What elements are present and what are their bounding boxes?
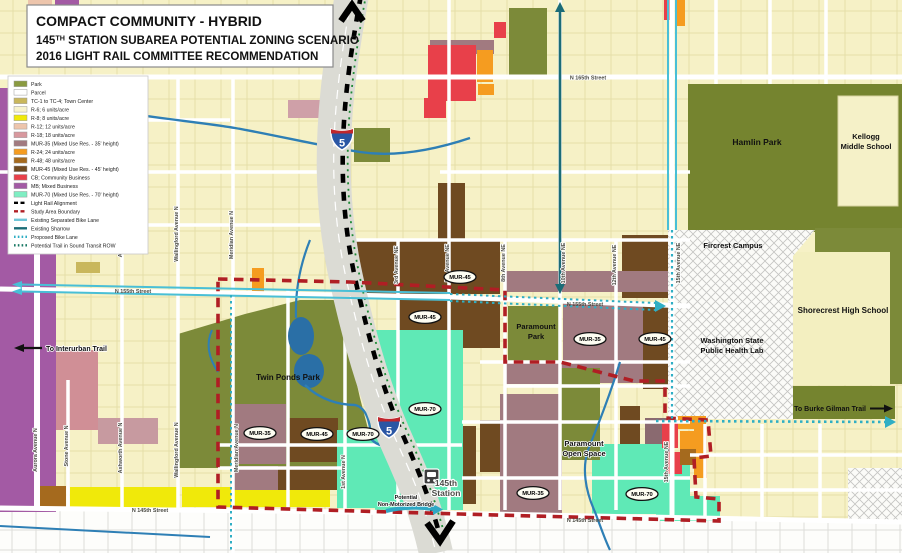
badge-text: MUR-45 (414, 315, 436, 321)
street-label: N 165th Street (570, 76, 606, 82)
street-label: N 145th Street (567, 518, 603, 524)
legend-label: R-24; 24 units/acre (31, 150, 75, 156)
title-145: 145 (36, 34, 56, 47)
badge-text: MUR-45 (644, 337, 666, 343)
legend-label: R-6; 6 units/acre (31, 108, 69, 114)
zoning-badge: MUR-45 (301, 428, 333, 441)
street-label: 12th Avenue NE (612, 244, 618, 285)
zone-mur45-c (438, 183, 465, 240)
health-lab-label2: Public Health Lab (701, 346, 764, 355)
kellogg-label1: Kellogg (852, 132, 880, 141)
street-label: 15th Avenue NE (676, 242, 682, 283)
station-label1: 145th (435, 478, 457, 488)
zoning-badge: MUR-45 (444, 271, 476, 284)
zoning-badge: MUR-45 (409, 311, 441, 324)
legend-label: R-18; 18 units/acre (31, 133, 75, 139)
fircrest-campus-label: Fircrest Campus (703, 241, 762, 250)
xhatch-se-corner (848, 468, 902, 520)
kellogg-label2: Middle School (841, 142, 892, 151)
zone-cb-top (428, 45, 476, 101)
legend-label: Study Area Boundary (31, 210, 80, 216)
street-label: 15th Avenue NE (664, 441, 670, 482)
badge-text: MUR-70 (414, 407, 436, 413)
park-e-strip (888, 254, 902, 384)
legend-label: MUR-35 (Mixed Use Res. - 35' height) (31, 142, 119, 148)
zone-r24-top2 (478, 84, 494, 95)
street-label: Ashworth Avenue N (118, 422, 124, 473)
badge-text: MUR-45 (449, 275, 471, 281)
legend-label: Proposed Bike Lane (31, 235, 78, 241)
legend-label: MB; Mixed Business (31, 184, 78, 190)
legend-label: CB; Community Business (31, 176, 90, 182)
station-icon-wheel1 (427, 479, 430, 482)
paramount-open-space-label1: Paramount (564, 439, 604, 448)
zone-r8-145th-a (70, 487, 178, 508)
station-icon-window (427, 472, 436, 477)
shield-number: 5 (339, 138, 345, 150)
street-label: Wallingford Avenue N (174, 422, 180, 478)
twin-pond-north (288, 317, 314, 355)
street-label: N 155th Street (567, 302, 603, 308)
zoning-map-page: 5 5 Aurora Avenue N Stone Avenue N Ashwo… (0, 0, 902, 553)
park-i5-patch (354, 128, 390, 162)
title-th-sup: TH (55, 34, 65, 43)
street-label: N 145th Street (132, 508, 168, 514)
zone-r18-west2 (98, 418, 158, 444)
street-label: Wallingford Avenue N (174, 206, 180, 262)
map-title-line2: 145TH STATION SUBAREA POTENTIAL ZONING S… (36, 34, 359, 48)
legend-label: R-12; 12 units/acre (31, 125, 75, 131)
badge-text: MUR-35 (579, 337, 601, 343)
badge-text: MUR-35 (249, 431, 271, 437)
fircrest-campus-area (668, 230, 793, 419)
legend-label: Potential Trail in Sound Transit ROW (31, 244, 116, 250)
park-ne-strip (815, 228, 902, 254)
zoning-badge: MUR-35 (517, 487, 549, 500)
health-lab-label1: Washington State (700, 336, 763, 345)
legend-label: R-48; 48 units/acre (31, 159, 75, 165)
zoning-map-canvas[interactable]: 5 5 Aurora Avenue N Stone Avenue N Ashwo… (0, 0, 902, 553)
zone-tc-west (76, 262, 100, 273)
street-label: N 155th Street (115, 289, 151, 295)
park-north-strip (509, 8, 547, 77)
street-label: 8th Avenue NE (501, 244, 507, 282)
map-title-line1: COMPACT COMMUNITY - HYBRID (36, 13, 262, 29)
interurban-trail-label: To Interurban Trail (46, 346, 107, 353)
legend-label: R-8; 8 units/acre (31, 116, 69, 122)
zone-r18-west (56, 350, 98, 430)
legend: Park Parcel TC-1 to TC-4; Town Center R-… (8, 76, 148, 254)
title-line2-rest: STATION SUBAREA POTENTIAL ZONING SCENARI… (65, 34, 359, 47)
shorecrest-area (792, 252, 890, 385)
zone-cb-top2 (424, 98, 446, 118)
kellogg-school-area (838, 96, 898, 206)
zoning-badge: MUR-70 (626, 488, 658, 501)
shorecrest-label: Shorecrest High School (798, 306, 889, 315)
zoning-badge: MUR-35 (244, 427, 276, 440)
zone-r48-sw (38, 486, 66, 508)
zone-mur35-b (505, 362, 563, 384)
street-label: 10th Avenue NE (561, 242, 567, 283)
badge-text: MUR-45 (306, 432, 328, 438)
zoning-badge: MUR-70 (409, 403, 441, 416)
zoning-badge: MUR-35 (574, 333, 606, 346)
map-title-line3: 2016 LIGHT RAIL COMMITTEE RECOMMENDATION (36, 50, 318, 63)
zone-cb-top3 (494, 22, 506, 38)
street-label: Stone Avenue N (64, 425, 70, 466)
legend-label: MUR-45 (Mixed Use Res. - 45' height) (31, 167, 119, 173)
paramount-park-label1: Paramount (516, 322, 556, 331)
twin-ponds-park-label: Twin Ponds Park (256, 373, 320, 382)
legend-label: Existing Separated Bike Lane (31, 218, 99, 224)
title-box: COMPACT COMMUNITY - HYBRID 145TH STATION… (27, 5, 359, 67)
hamlin-park-label: Hamlin Park (732, 137, 781, 147)
legend-label: Existing Sharrow (31, 227, 70, 233)
paramount-park-label2: Park (528, 332, 545, 341)
zoning-badge: MUR-70 (347, 428, 379, 441)
bridge-label1: Potential (395, 495, 418, 501)
badge-text: MUR-35 (522, 491, 544, 497)
station-label2: Station (432, 488, 461, 498)
street-label: Meridian Avenue N (229, 211, 235, 259)
shield-number: 5 (386, 426, 392, 438)
legend-label: Light Rail Alignment (31, 201, 77, 207)
burke-gilman-label: To Burke Gilman Trail (794, 406, 866, 413)
street-label: 1st Avenue N (341, 455, 347, 489)
street-label: Meridian Avenue N (234, 424, 240, 472)
zone-mur45-k (620, 406, 640, 446)
legend-label: TC-1 to TC-4; Town Center (31, 99, 93, 105)
street-label: 3rd Avenue NE (394, 246, 400, 284)
badge-text: MUR-70 (631, 492, 653, 498)
zone-mur35-strip (505, 271, 668, 292)
bridge-label2: Non-Motorized Bridge (378, 502, 434, 508)
badge-text: MUR-70 (352, 432, 374, 438)
twin-pond-south (294, 354, 324, 388)
legend-label: Parcel (31, 91, 46, 97)
legend-label: Park (31, 82, 42, 88)
paramount-open-space-label2: Open Space (562, 449, 605, 458)
street-label: Aurora Avenue N (33, 428, 39, 472)
legend-label: MUR-70 (Mixed Use Res. - 70' height) (31, 193, 119, 199)
zone-r24-se2 (680, 431, 694, 449)
burke-green-area (790, 386, 895, 419)
zoning-badge: MUR-45 (639, 333, 671, 346)
